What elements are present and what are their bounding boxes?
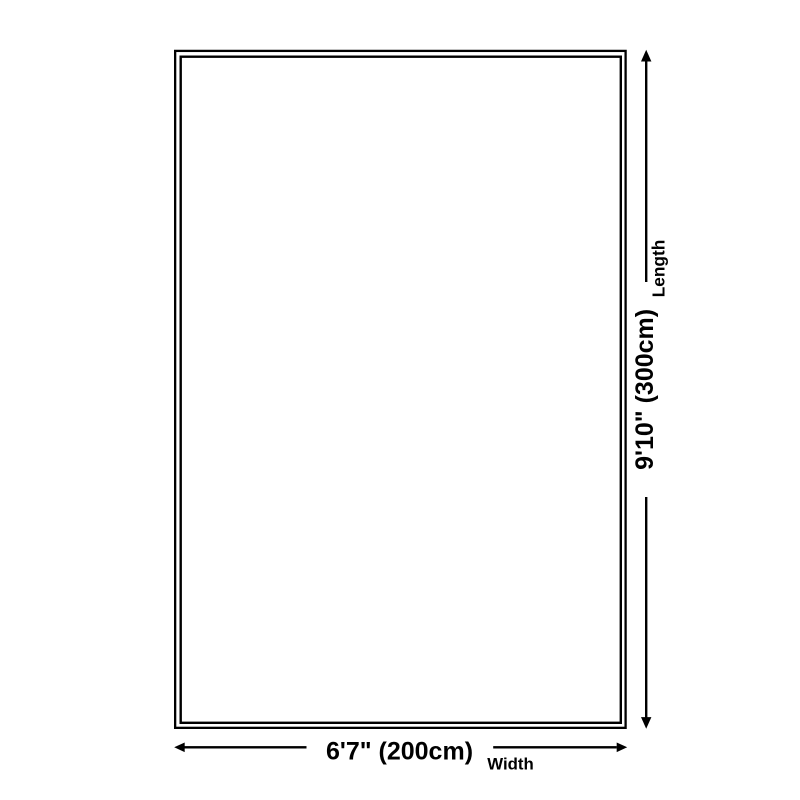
svg-text:Length: Length xyxy=(649,240,669,298)
svg-text:9'10" (300cm): 9'10" (300cm) xyxy=(631,309,659,470)
svg-text:Width: Width xyxy=(487,755,533,774)
svg-text:6'7" (200cm): 6'7" (200cm) xyxy=(326,737,473,765)
